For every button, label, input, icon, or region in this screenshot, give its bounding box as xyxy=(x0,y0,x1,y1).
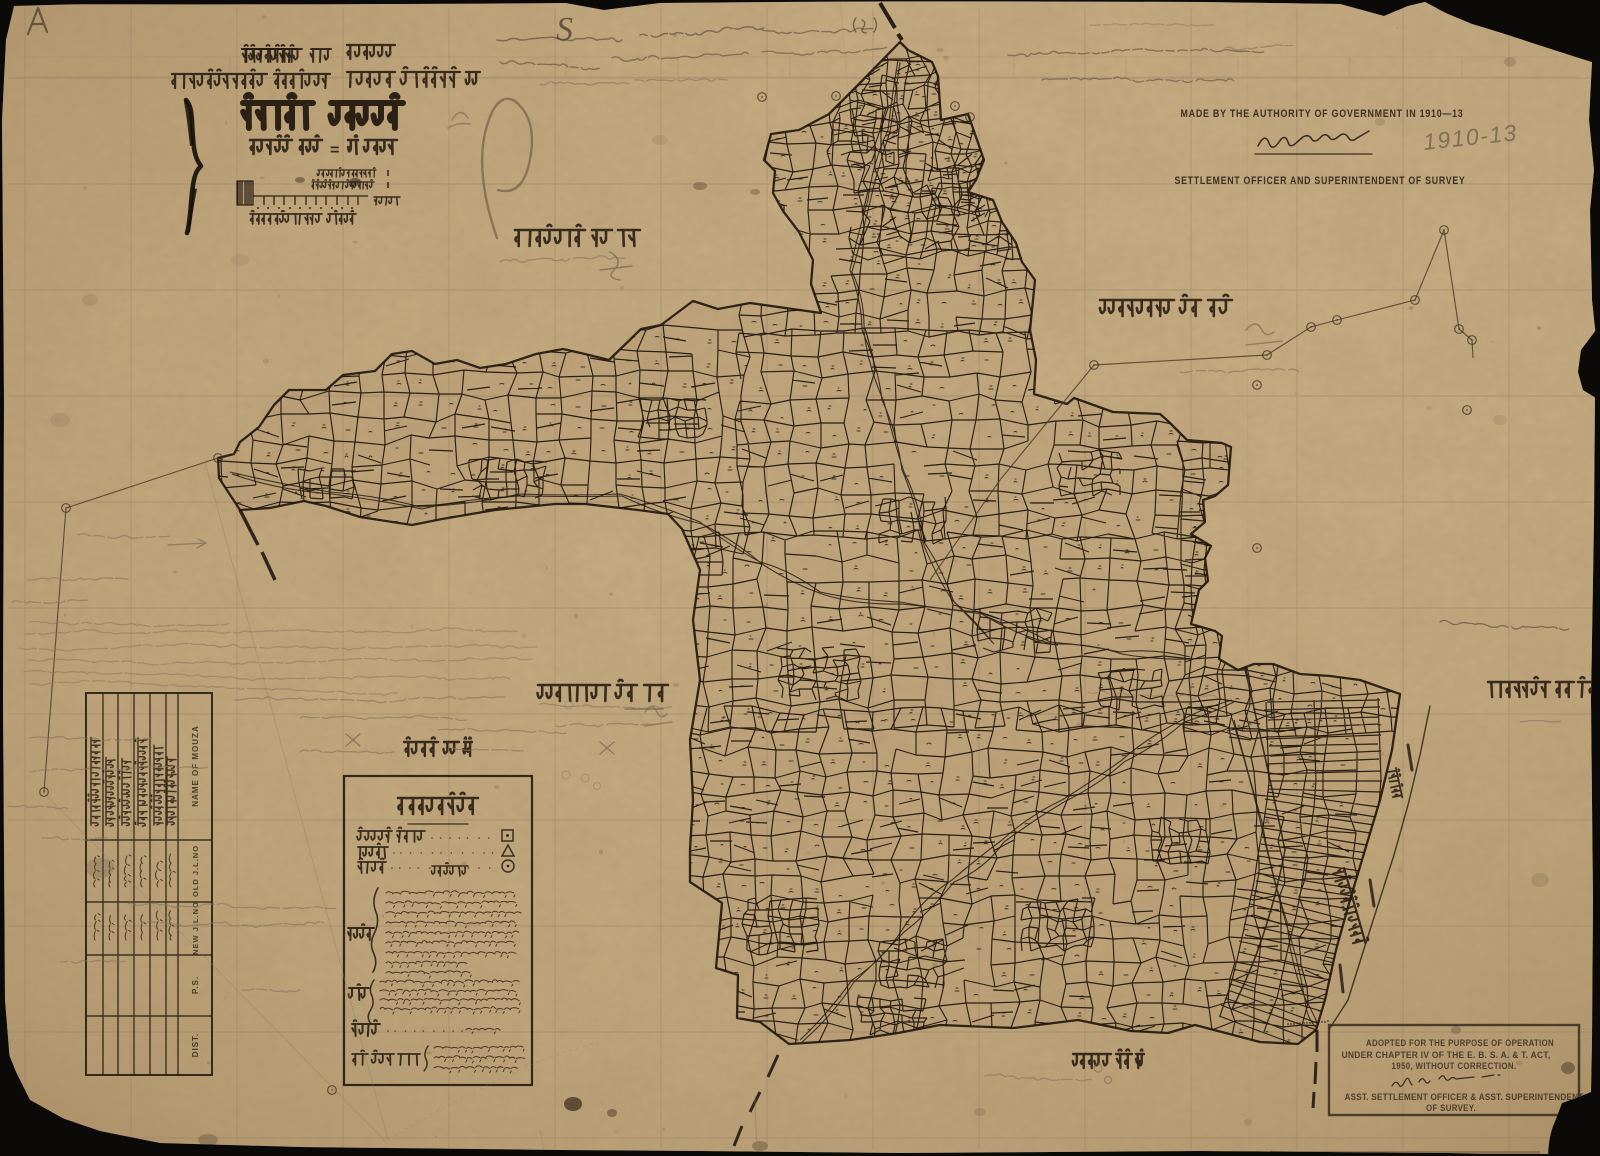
svg-text:ADOPTED FOR THE PURPOSE OF OPE: ADOPTED FOR THE PURPOSE OF OPERATION xyxy=(1366,1038,1554,1048)
svg-text:SETTLEMENT OFFICER AND SUPERIN: SETTLEMENT OFFICER AND SUPERINTENDENT OF… xyxy=(1175,175,1466,187)
svg-text:NEW J.L.NO: NEW J.L.NO xyxy=(191,901,200,955)
svg-text:OLD J.L.NO: OLD J.L.NO xyxy=(191,845,200,897)
svg-text:ASST. SETTLEMENT OFFICER & ASS: ASST. SETTLEMENT OFFICER & ASST. SUPERIN… xyxy=(1345,1092,1584,1102)
svg-text:MADE BY THE AUTHORITY OF GOVER: MADE BY THE AUTHORITY OF GOVERNMENT IN 1… xyxy=(1181,108,1464,120)
svg-text:S: S xyxy=(556,11,573,48)
svg-text:P.S.: P.S. xyxy=(191,976,200,994)
svg-text:UNDER CHAPTER IV OF THE E. B.: UNDER CHAPTER IV OF THE E. B. S. A. & T.… xyxy=(1342,1050,1551,1060)
svg-text:DIST.: DIST. xyxy=(191,1033,200,1058)
svg-text:1950, WITHOUT CORRECTION.: 1950, WITHOUT CORRECTION. xyxy=(1392,1061,1517,1071)
svg-text:=: = xyxy=(330,142,339,159)
svg-text:OF SURVEY.: OF SURVEY. xyxy=(1426,1103,1476,1113)
